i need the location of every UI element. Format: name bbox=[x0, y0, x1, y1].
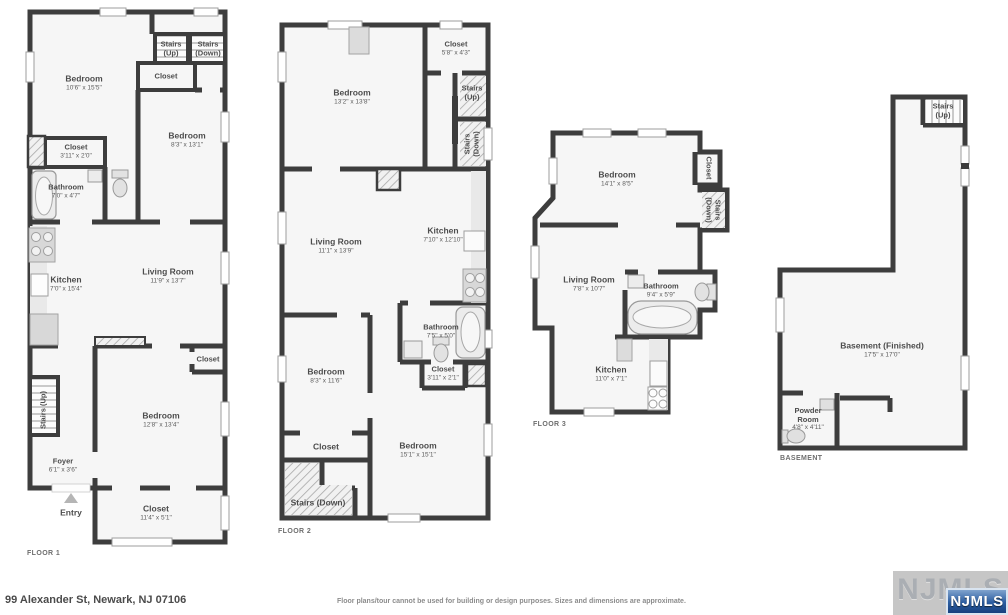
chimney-hatch bbox=[377, 169, 400, 190]
floor2-tag: FLOOR 2 bbox=[278, 528, 311, 535]
room-label-stairs-up: Stairs (Up) bbox=[40, 391, 49, 429]
room-label-stairs-up: Stairs (Up) bbox=[462, 84, 483, 101]
disclaimer-text: Floor plans/tour cannot be used for buil… bbox=[337, 598, 686, 605]
room-label-bedroom: Bedroom 8'3" x 11'6" bbox=[307, 366, 344, 385]
bathtub-icon bbox=[456, 307, 485, 358]
room-label-living-room: Living Room 7'8" x 10'7" bbox=[563, 274, 614, 293]
sink-icon bbox=[404, 341, 422, 358]
room-label-closet: Closet 11'4" x 5'1" bbox=[140, 503, 172, 522]
sink-icon bbox=[31, 274, 48, 296]
room-label-closet: Closet 3'11" x 2'1" bbox=[427, 365, 459, 382]
property-address: 99 Alexander St, Newark, NJ 07106 bbox=[5, 594, 186, 606]
room-label-closet: Closet bbox=[197, 356, 220, 365]
floor3-tag: FLOOR 3 bbox=[533, 421, 566, 428]
floorplan-page: Bedroom 10'6" x 15'5" Stairs (Up) Stairs… bbox=[0, 0, 1008, 615]
room-label-bedroom: Bedroom 10'6" x 15'5" bbox=[65, 73, 102, 92]
basement-tag: BASEMENT bbox=[780, 455, 822, 462]
njmls-badge: NJMLS bbox=[946, 588, 1008, 615]
room-label-bedroom: Bedroom 15'1" x 15'1" bbox=[399, 440, 436, 459]
room-label-powder-room: Powder Room 4'8" x 4'11" bbox=[792, 407, 824, 433]
room-label-stairs-down: Stairs (Down) bbox=[704, 197, 721, 222]
sink-icon bbox=[628, 275, 644, 288]
room-label-basement: Basement (Finished) 17'5" x 17'0" bbox=[840, 340, 924, 359]
sink-icon bbox=[88, 170, 102, 182]
hatched-nook bbox=[28, 136, 45, 167]
room-label-bathroom: Bathroom 7'5" x 5'0" bbox=[423, 323, 458, 340]
room-label-kitchen: Kitchen 7'0" x 15'4" bbox=[50, 274, 82, 293]
bathtub-icon bbox=[628, 301, 697, 334]
floor1-tag: FLOOR 1 bbox=[27, 550, 60, 557]
entry-door-opening bbox=[52, 484, 90, 492]
room-label-stairs-up: Stairs (Up) bbox=[933, 102, 954, 119]
sink-icon bbox=[650, 361, 667, 386]
room-label-stairs-down: Stairs (Down) bbox=[463, 131, 480, 156]
hatched-wall bbox=[95, 337, 145, 346]
room-label-closet: Closet bbox=[313, 441, 339, 452]
room-label-bathroom: Bathroom 9'4" x 5'9" bbox=[643, 282, 678, 299]
toilet-icon bbox=[433, 337, 449, 362]
stair-rail-wall bbox=[452, 96, 458, 144]
sink-icon bbox=[464, 231, 485, 251]
toilet-icon bbox=[695, 283, 716, 301]
toilet-icon bbox=[112, 170, 128, 197]
room-label-closet: Closet bbox=[704, 157, 713, 180]
entry-label: Entry bbox=[60, 507, 82, 518]
floor2-plan bbox=[278, 21, 492, 522]
room-label-stairs-down: Stairs (Down) bbox=[291, 497, 346, 508]
room-label-kitchen: Kitchen 11'0" x 7'1" bbox=[595, 364, 627, 383]
room-label-closet: Closet bbox=[155, 73, 178, 82]
room-label-living-room: Living Room 11'1" x 13'9" bbox=[310, 236, 361, 255]
room-label-living-room: Living Room 11'9" x 13'7" bbox=[142, 266, 193, 285]
entry-arrow-icon bbox=[64, 493, 78, 503]
wardrobe-icon bbox=[349, 27, 369, 54]
room-label-closet: Closet 5'8" x 4'3" bbox=[442, 40, 470, 57]
room-label-bedroom: Bedroom 14'1" x 8'5" bbox=[598, 169, 635, 188]
room-label-foyer: Foyer 6'1" x 3'6" bbox=[49, 457, 77, 474]
room-label-kitchen: Kitchen 7'10" x 12'10" bbox=[423, 225, 462, 244]
room-label-bathroom: Bathroom 7'0" x 4'7" bbox=[48, 183, 83, 200]
room-label-bedroom: Bedroom 8'3" x 13'1" bbox=[168, 130, 205, 149]
room-label-closet: Closet 3'11" x 2'0" bbox=[60, 143, 92, 160]
floorplan-drawing bbox=[0, 0, 1008, 615]
room-label-stairs-up: Stairs (Up) bbox=[161, 40, 182, 57]
counter-icon bbox=[30, 314, 58, 345]
stove-icon bbox=[648, 387, 667, 410]
room-label-bedroom: Bedroom 13'2" x 13'8" bbox=[333, 87, 370, 106]
basement-plan bbox=[776, 97, 969, 448]
room-label-bedroom: Bedroom 12'8" x 13'4" bbox=[142, 410, 179, 429]
fridge-icon bbox=[617, 339, 632, 361]
room-label-stairs-down: Stairs (Down) bbox=[195, 40, 220, 57]
chimney-hatch bbox=[467, 364, 486, 386]
